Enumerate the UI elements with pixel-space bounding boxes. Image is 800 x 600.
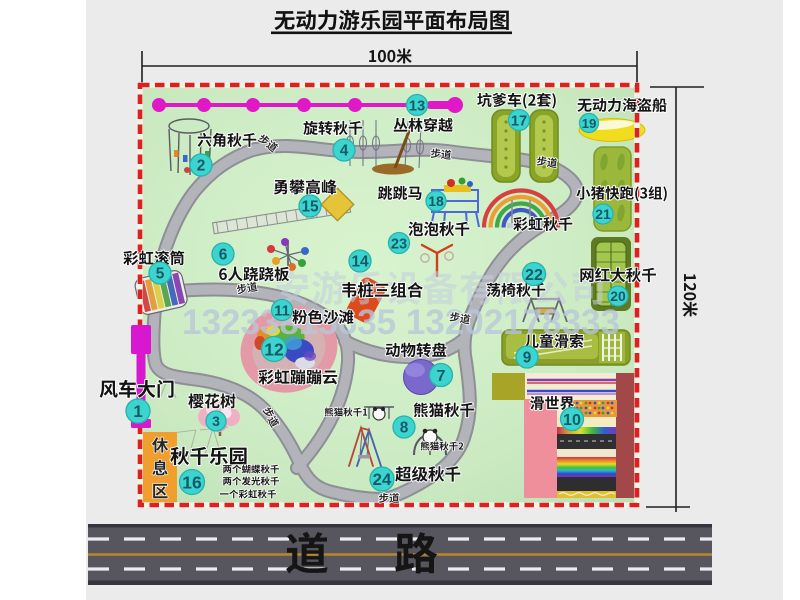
svg-text:24: 24 [373,470,392,489]
svg-text:15: 15 [301,199,319,216]
svg-text:11: 11 [274,303,290,319]
svg-text:3: 3 [212,413,220,429]
svg-text:2: 2 [197,158,206,175]
svg-text:6: 6 [219,247,228,264]
svg-text:7: 7 [437,367,446,385]
svg-text:4: 4 [340,143,349,160]
svg-text:8: 8 [400,420,409,437]
svg-text:5: 5 [156,266,165,283]
svg-text:22: 22 [525,266,543,284]
svg-text:18: 18 [428,193,444,209]
svg-text:13233815635 13202178333: 13233815635 13202178333 [182,303,620,342]
svg-text:14: 14 [351,254,369,271]
svg-text:1: 1 [133,402,142,421]
svg-text:17: 17 [511,113,527,129]
svg-text:16: 16 [182,472,202,492]
svg-text:9: 9 [523,350,532,367]
svg-text:10: 10 [563,411,581,429]
svg-text:21: 21 [595,206,611,222]
svg-text:20: 20 [610,288,626,304]
svg-text:13: 13 [409,98,425,114]
svg-text:23: 23 [391,236,407,252]
svg-text:12: 12 [264,339,284,359]
svg-text:19: 19 [582,116,597,131]
